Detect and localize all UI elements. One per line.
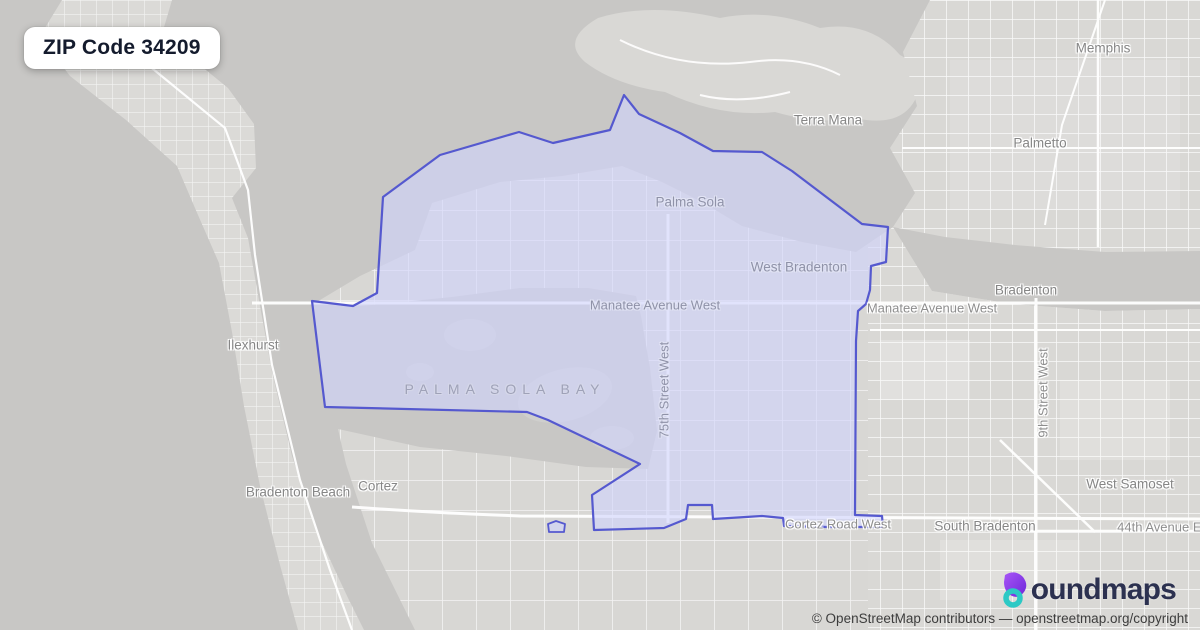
map-canvas[interactable]	[0, 0, 1200, 630]
palmetto-blocks	[950, 60, 1180, 210]
osm-attribution-link[interactable]: © OpenStreetMap contributors — openstree…	[812, 611, 1188, 626]
boundmaps-logo[interactable]: oundmaps	[1000, 572, 1176, 608]
boundmaps-wordmark: oundmaps	[1031, 573, 1176, 607]
zip-code-badge: ZIP Code 34209	[24, 27, 220, 69]
boundmaps-drop-icon	[1000, 572, 1030, 608]
zip-code-badge-label: ZIP Code 34209	[43, 36, 201, 59]
map-viewport[interactable]: Terra Mana Memphis Palmetto Palma Sola W…	[0, 0, 1200, 630]
zip-boundary-fragment	[548, 521, 565, 532]
